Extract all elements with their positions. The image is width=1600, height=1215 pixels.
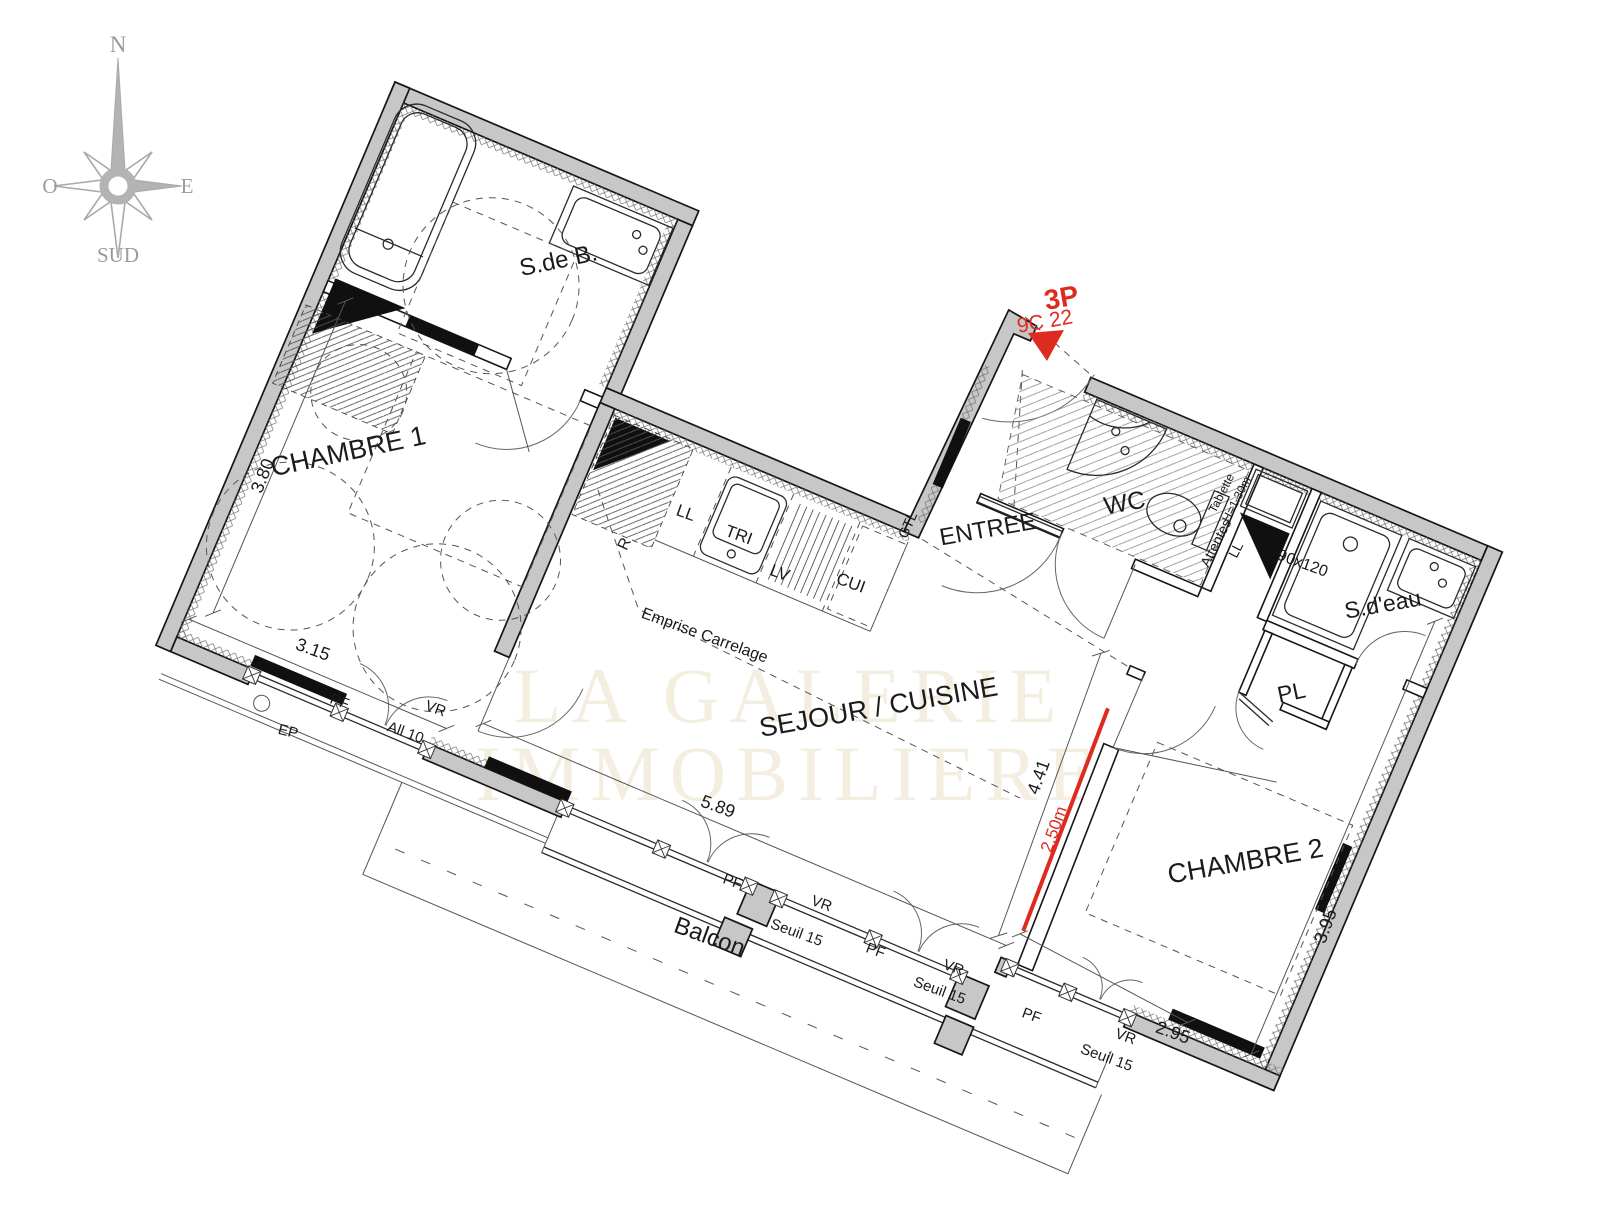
opening-label-ep: EP	[276, 721, 300, 742]
room-label-sdb: S.de B.	[517, 239, 600, 282]
pl-details	[1222, 690, 1281, 749]
plan-geometry	[105, 54, 1514, 1215]
kitchen-label-ll: LL	[674, 501, 698, 525]
opening-label-pf: PF	[1020, 1005, 1044, 1028]
compass-north: N	[110, 32, 127, 57]
compass-south: SUD	[97, 243, 139, 267]
unit-marker: 3P 9C 22	[1015, 279, 1081, 361]
kitchen-label-cui: CUI	[834, 569, 868, 597]
opening-label-vr: VR	[809, 892, 835, 915]
dimension-315: 3.15	[293, 634, 333, 665]
compass-rose: N O E SUD	[42, 32, 193, 267]
opening-label-all10: All 10	[385, 718, 426, 747]
ep-drain	[251, 693, 272, 714]
compass-west: O	[42, 174, 57, 198]
insulation	[177, 103, 1496, 1101]
radiators-shafts	[182, 151, 1455, 1091]
room-label-entree: ENTREE	[937, 508, 1038, 551]
opening-label-seuil: Seuil 15	[768, 916, 825, 951]
kitchen-label-lv: LV	[767, 561, 792, 586]
opening-label-pf: PF	[864, 940, 888, 963]
compass-east: E	[181, 174, 194, 198]
floor-plan-page: LA GALERIE IMMOBILIERE	[0, 0, 1600, 1215]
room-label-pl: PL	[1275, 676, 1308, 707]
room-label-chambre2: CHAMBRE 2	[1165, 833, 1325, 890]
room-label-chambre1: CHAMBRE 1	[268, 420, 428, 482]
opening-label-vr: VR	[423, 697, 449, 720]
floor-plan-canvas: LA GALERIE IMMOBILIERE	[0, 0, 1600, 1215]
room-label-sdeau: S.d'eau	[1342, 585, 1423, 624]
room-label-balcon: Balcon	[670, 912, 748, 962]
kitchen-label-tri: TRI	[723, 521, 755, 548]
entry-arrow-icon	[1028, 330, 1064, 361]
